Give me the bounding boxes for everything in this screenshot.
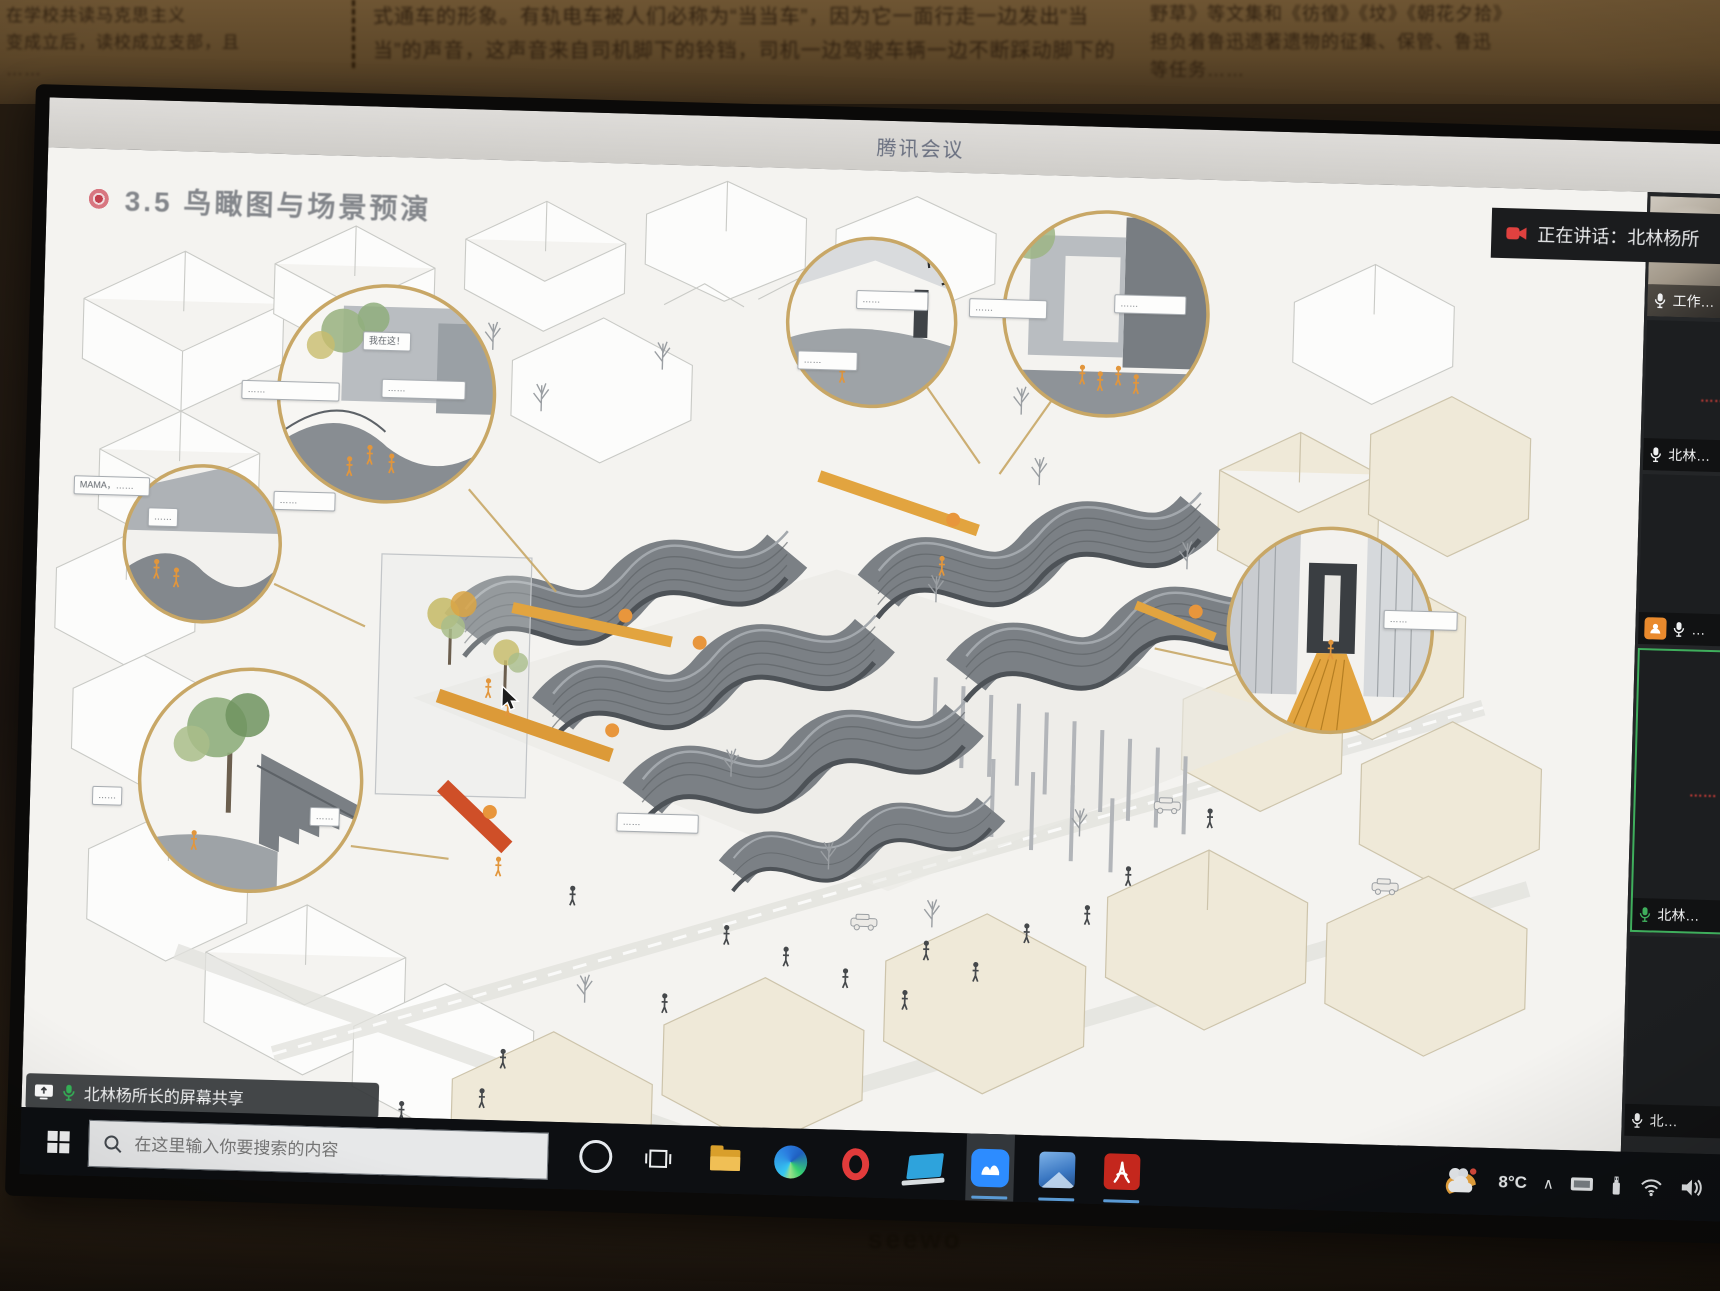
start-button[interactable] [34, 1107, 84, 1175]
mic-icon [1653, 292, 1666, 308]
weather-icon[interactable] [1442, 1163, 1483, 1198]
taskbar-app-file-explorer[interactable] [700, 1126, 750, 1194]
speech-bubble: …… [1383, 610, 1458, 631]
slide-title: 3.5 鸟瞰图与场景预演 [124, 180, 432, 229]
search-input[interactable] [132, 1134, 496, 1166]
participant-name: 北林… [1668, 445, 1711, 466]
opera-icon [841, 1147, 869, 1180]
paper-middle-column: 式通车的形象。有轨电车被人们必称为“当当车”，因为它一面行走一边发出“当 当”的… [352, 0, 1133, 68]
participant-name: 北… [1649, 1110, 1678, 1131]
speech-bubble: MAMA，…… [74, 475, 151, 496]
taskbar-search[interactable] [88, 1120, 549, 1180]
taskbar-app-acrobat[interactable] [1097, 1137, 1147, 1205]
glass-volume [375, 554, 532, 798]
participant-name: 北林… [1657, 905, 1700, 926]
screen-share-icon [34, 1083, 54, 1101]
taskbar-app-cortana[interactable] [570, 1122, 620, 1190]
speech-bubble: …… [241, 380, 339, 402]
mouse-cursor [501, 685, 524, 712]
taskbar-app-opera[interactable] [830, 1130, 880, 1198]
paper-wall-text: 在学校共读马克思主义 变成立后，读校成立支部，且 …… 式通车的形象。有轨电车被… [0, 0, 1720, 104]
meeting-window-title: 腾讯会议 [876, 131, 965, 162]
presenter-badge-icon [1644, 617, 1667, 640]
speech-bubble: …… [1114, 294, 1187, 315]
participant-tile[interactable]: 北… [1624, 936, 1720, 1140]
participant-tile-active-speaker[interactable]: …… 北林… [1630, 648, 1720, 936]
file-explorer-icon [710, 1149, 741, 1171]
running-indicator [971, 1196, 1007, 1200]
search-icon [103, 1134, 123, 1154]
meeting-logo-icon [1505, 224, 1527, 243]
taskbar-app-edge[interactable] [765, 1128, 815, 1196]
taskbar-app-photos[interactable] [1032, 1135, 1082, 1203]
speech-bubble: …… [92, 786, 123, 806]
paper-left-column: 在学校共读马克思主义 变成立后，读校成立支部，且 …… [6, 2, 240, 83]
photo-backdrop: 在学校共读马克思主义 变成立后，读校成立支部，且 …… 式通车的形象。有轨电车被… [0, 0, 1720, 1291]
taskbar-app-tencent-meeting[interactable] [965, 1133, 1015, 1201]
edge-icon [773, 1145, 807, 1179]
windows-logo-icon [46, 1129, 71, 1154]
speech-bubble: …… [381, 379, 465, 400]
participant-name: 工作… [1672, 291, 1715, 312]
speech-bubble: …… [148, 507, 179, 527]
task-view-icon [644, 1146, 673, 1171]
taskbar-app-notebook[interactable] [900, 1132, 950, 1200]
speech-bubble: …… [797, 350, 858, 371]
participant-tile[interactable]: … [1638, 474, 1720, 648]
temperature-readout[interactable]: 8°C [1498, 1172, 1527, 1193]
usb-icon[interactable] [1610, 1174, 1624, 1196]
mic-icon [1630, 1112, 1643, 1128]
bezel-brand-logo: seewo [868, 1224, 963, 1255]
mic-active-icon [1638, 906, 1651, 922]
screen: 腾讯会议 [20, 97, 1720, 1222]
speech-bubble: …… [273, 491, 336, 512]
wifi-icon[interactable] [1639, 1176, 1665, 1197]
volume-icon[interactable] [1680, 1177, 1705, 1198]
record-bullet-icon [89, 189, 110, 210]
slide-artwork [21, 147, 1647, 1151]
mic-icon [1672, 621, 1685, 637]
speech-bubble: …… [969, 298, 1048, 319]
running-indicator [1103, 1199, 1139, 1203]
display-tray-icon[interactable] [1570, 1175, 1594, 1194]
speech-bubble: …… [309, 807, 340, 827]
notebook-app-icon [906, 1153, 944, 1179]
speaking-text: 正在讲话：北林杨所 [1537, 221, 1700, 252]
participant-display-name: …… [1700, 389, 1720, 406]
participant-display-name: …… [1689, 783, 1717, 800]
paper-right-column: 野草》等文集和《彷徨》《坟》《朝花夕拾》 担负着鲁迅遗著遗物的征集、保管、鲁迅 … [1150, 0, 1710, 84]
speech-bubble: 我在这！ [363, 331, 412, 351]
mic-icon [1649, 446, 1662, 462]
system-tray: 8°C ∧ [1441, 1147, 1704, 1221]
participant-tile[interactable]: …… 北林… [1643, 320, 1720, 474]
monitor: 腾讯会议 [5, 84, 1720, 1245]
cortana-icon [578, 1140, 612, 1174]
photos-icon [1039, 1151, 1076, 1188]
participant-name: … [1691, 621, 1705, 637]
acrobat-reader-icon [1104, 1153, 1141, 1190]
screen-share-text: 北林杨所长的屏幕共享 [84, 1081, 245, 1109]
tray-chevron-up-icon[interactable]: ∧ [1543, 1174, 1554, 1192]
speech-bubble: …… [856, 290, 929, 311]
running-indicator [1038, 1197, 1074, 1201]
shared-slide: 3.5 鸟瞰图与场景预演 …… MAMA，…… …… …… 我在这！ …… ……… [21, 147, 1647, 1151]
mic-on-icon [62, 1083, 76, 1101]
tencent-meeting-icon [971, 1148, 1010, 1187]
speech-bubble: …… [616, 813, 698, 834]
taskbar-app-task-view[interactable] [633, 1124, 683, 1192]
speaking-indicator: 正在讲话：北林杨所 [1491, 208, 1720, 267]
